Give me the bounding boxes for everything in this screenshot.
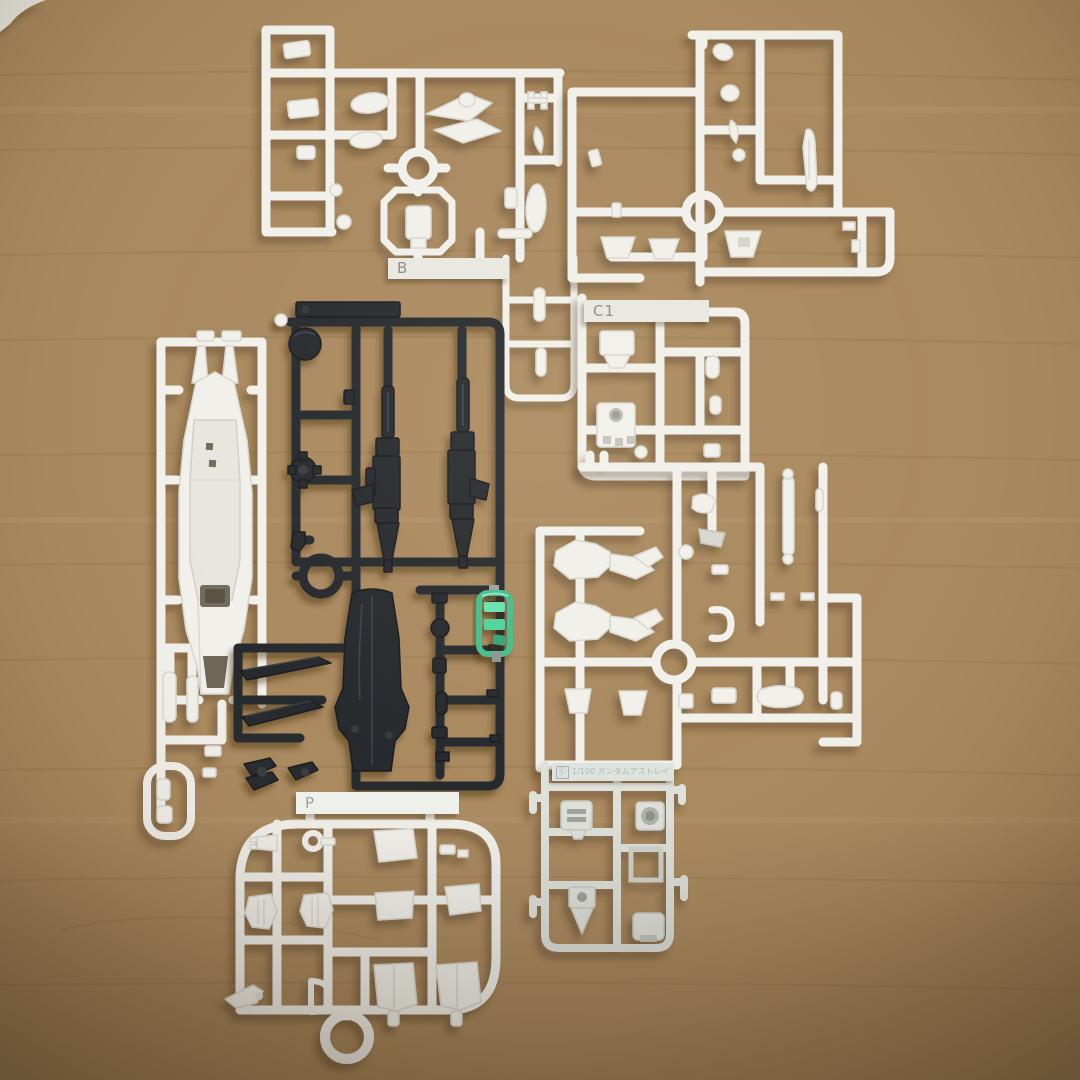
bottom-shade-overlay xyxy=(0,0,1080,1080)
sprue-b-label-text: B xyxy=(397,261,408,276)
sprue-p-label-text: P xyxy=(305,796,315,811)
scene-svg xyxy=(0,0,1080,1080)
model-kit-sprues-photo: B C1 P Ⓒ 1/100 ガンダムアストレイ xyxy=(0,0,1080,1080)
sprue-c1-label: C1 xyxy=(584,300,709,322)
copyright-mark: Ⓒ xyxy=(556,766,569,779)
sprue-nameplate-label: Ⓒ 1/100 ガンダムアストレイ xyxy=(552,763,674,781)
sprue-b-label: B xyxy=(388,258,509,279)
sprue-c1-label-text: C1 xyxy=(593,304,615,319)
nameplate-text: 1/100 ガンダムアストレイ xyxy=(572,768,670,776)
sprue-p-label: P xyxy=(296,792,459,814)
